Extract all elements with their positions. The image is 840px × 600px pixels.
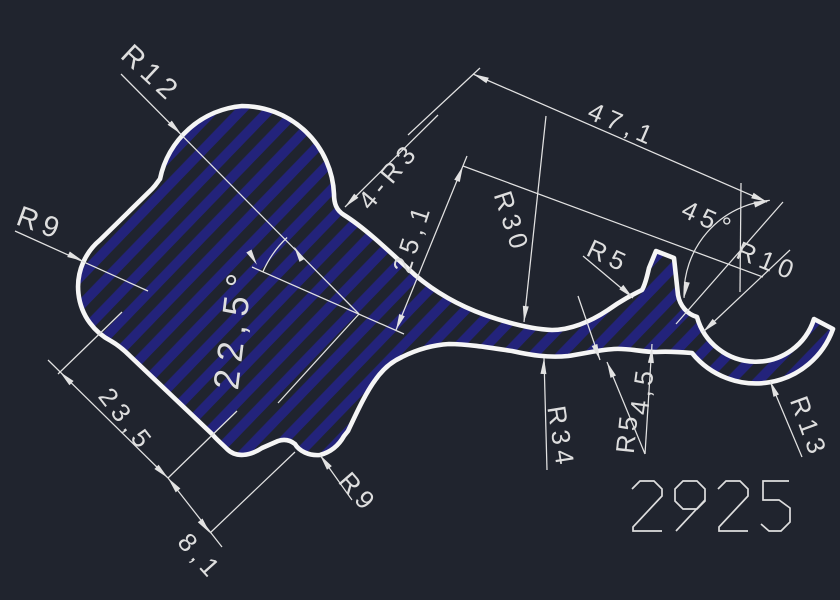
svg-text:R5: R5 bbox=[610, 411, 644, 455]
